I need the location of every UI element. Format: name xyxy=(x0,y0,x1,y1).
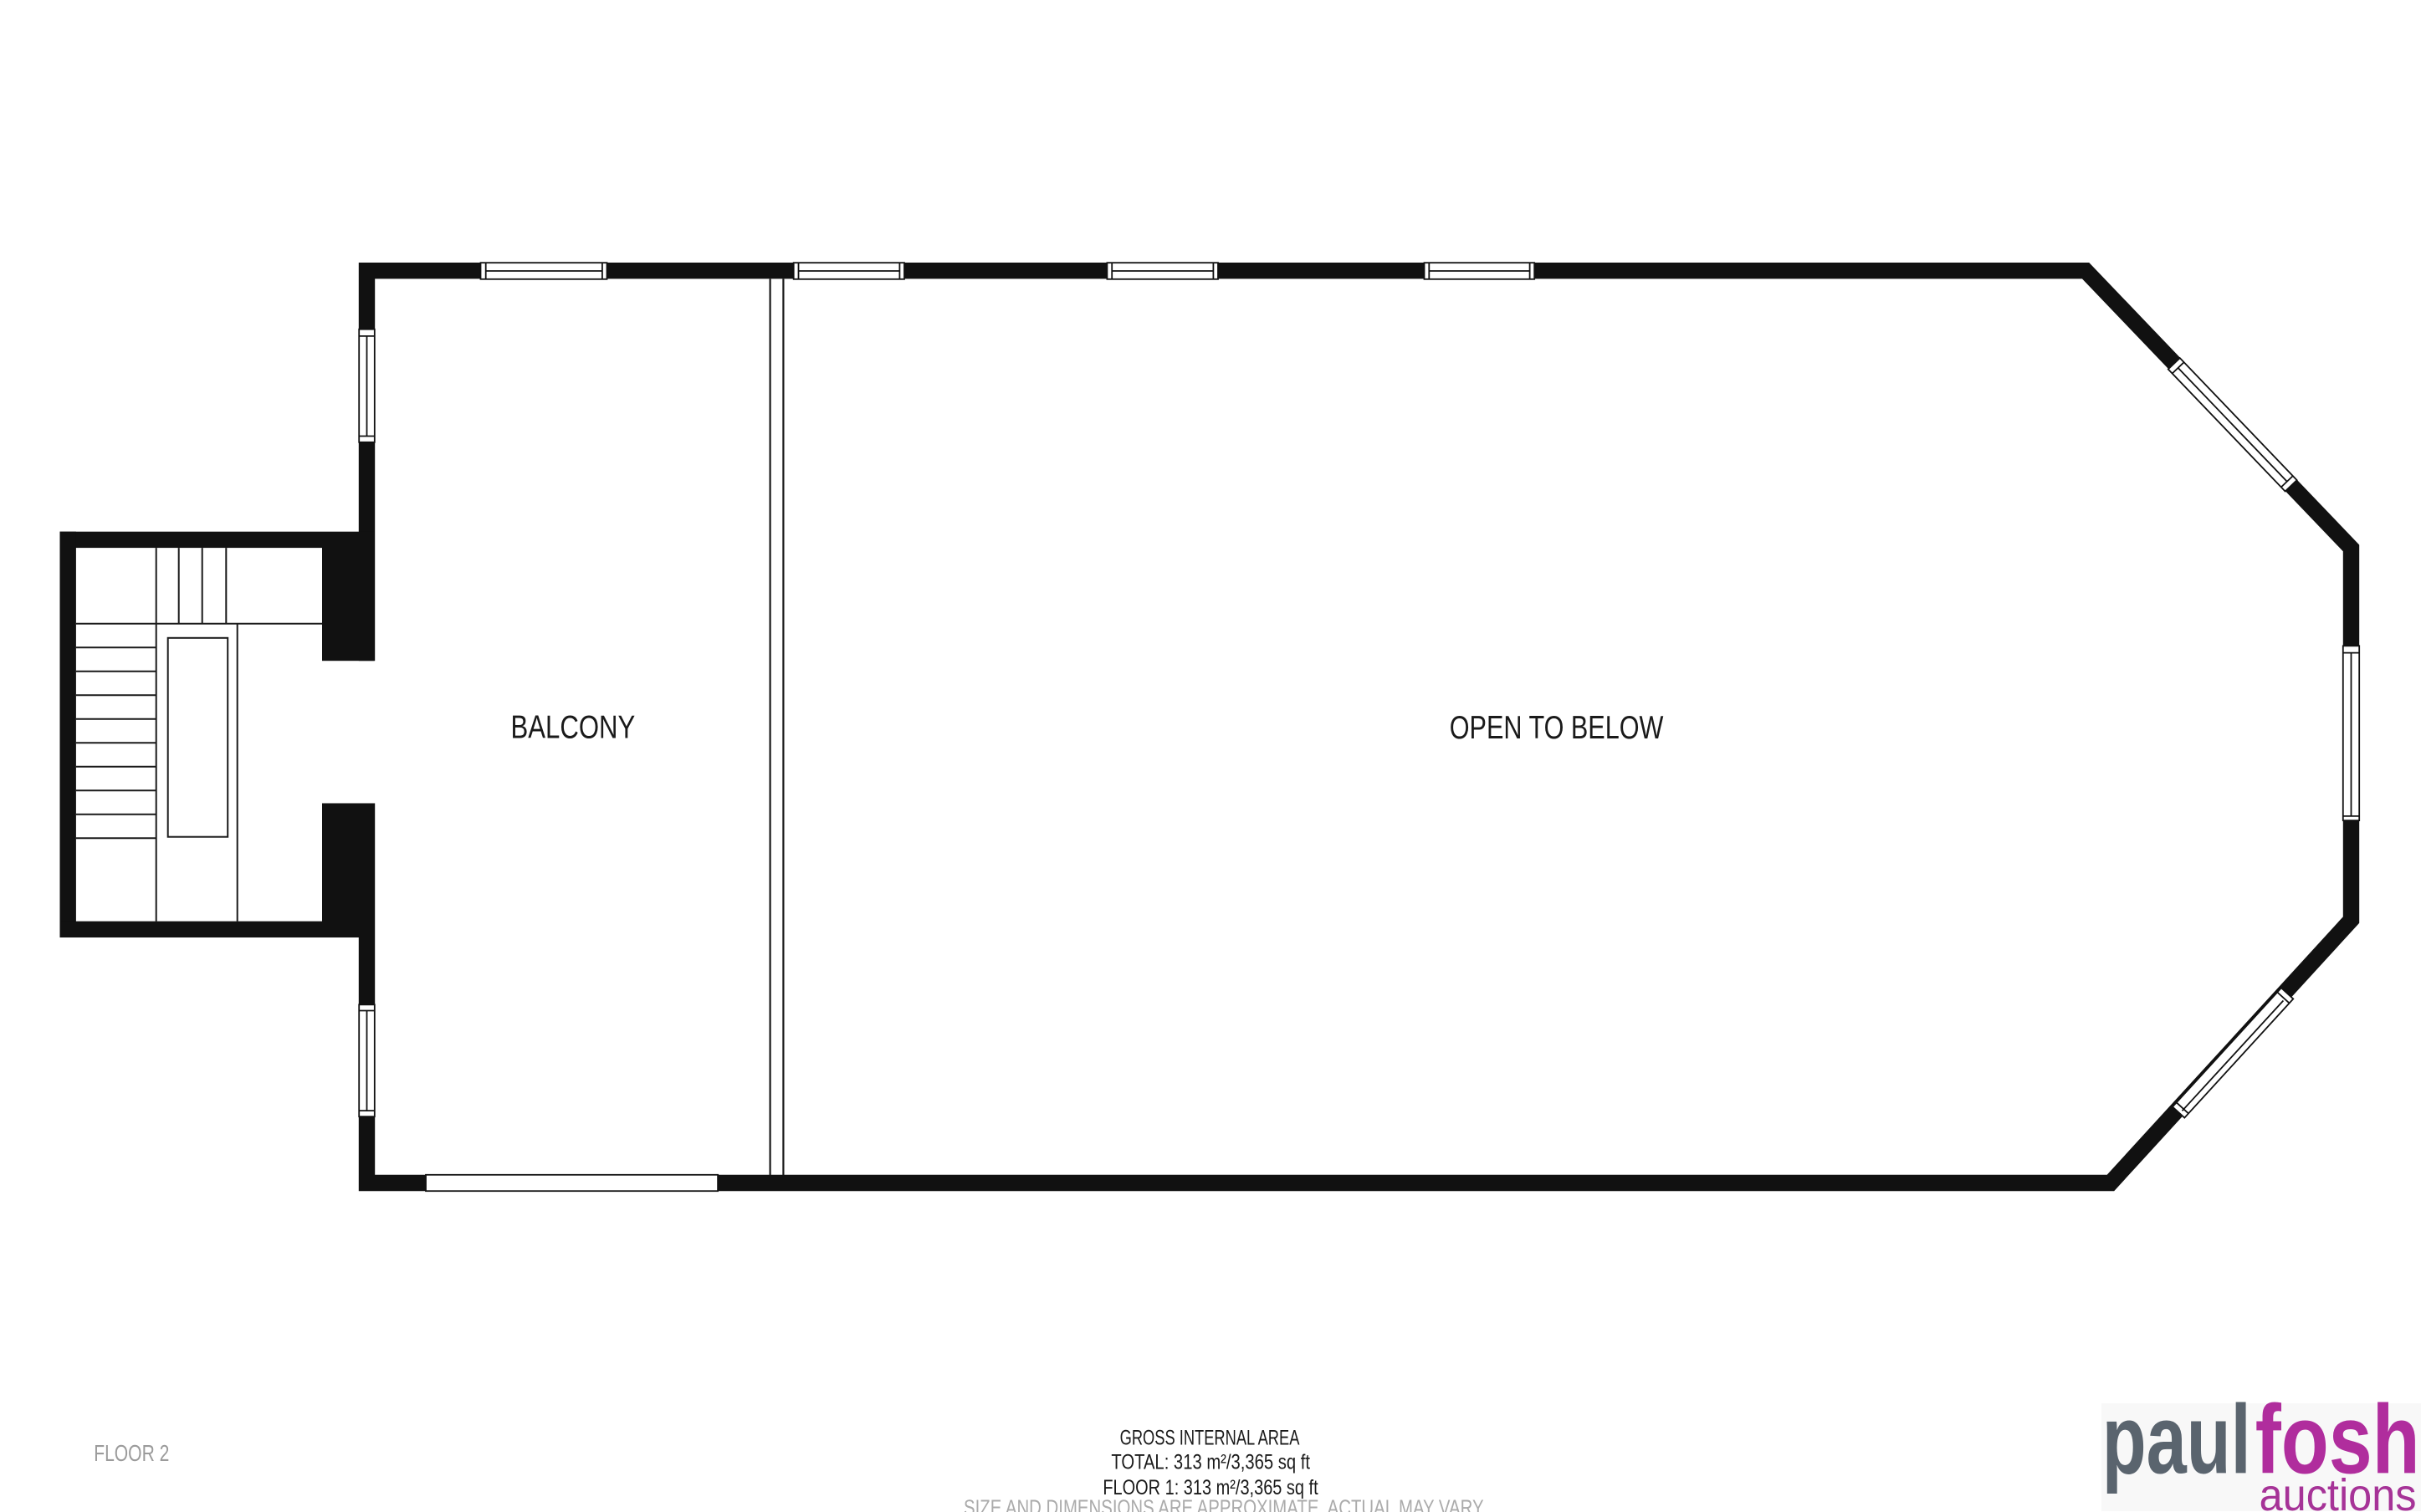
svg-text:GROSS INTERNAL AREA: GROSS INTERNAL AREA xyxy=(1120,1427,1300,1450)
svg-text:SIZE AND DIMENSIONS ARE APPROX: SIZE AND DIMENSIONS ARE APPROXIMATE, ACT… xyxy=(964,1496,1487,1512)
svg-text:OPEN TO BELOW: OPEN TO BELOW xyxy=(1450,710,1664,746)
svg-text:FLOOR 2: FLOOR 2 xyxy=(94,1440,169,1466)
svg-text:auctions: auctions xyxy=(2260,1470,2417,1512)
svg-text:paul: paul xyxy=(2102,1386,2251,1494)
svg-text:TOTAL: 313 m²/3,365 sq ft: TOTAL: 313 m²/3,365 sq ft xyxy=(1111,1451,1310,1474)
svg-text:BALCONY: BALCONY xyxy=(511,709,636,745)
